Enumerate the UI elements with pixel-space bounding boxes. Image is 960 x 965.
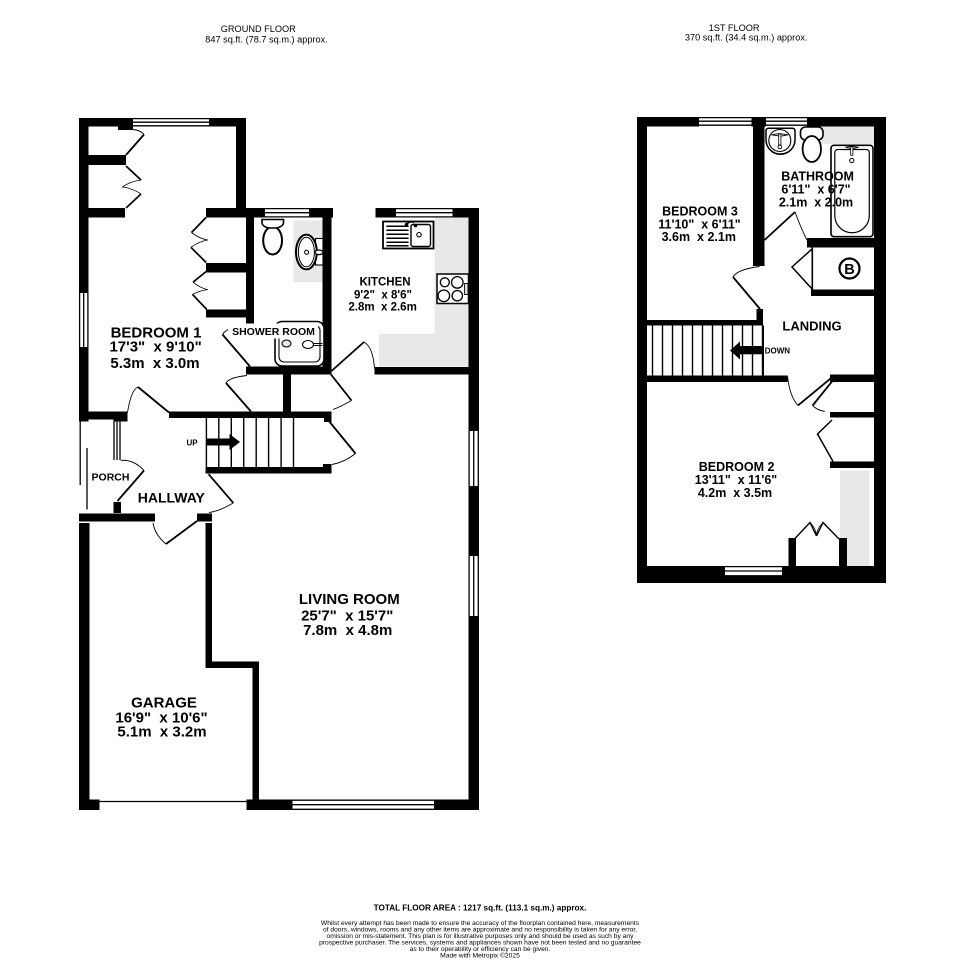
svg-text:KITCHEN: KITCHEN xyxy=(359,277,410,289)
svg-text:5.1m x 3.2m: 5.1m x 3.2m xyxy=(117,724,206,741)
svg-text:BEDROOM 2: BEDROOM 2 xyxy=(699,460,775,474)
svg-text:3.6m x 2.1m: 3.6m x 2.1m xyxy=(662,230,736,244)
svg-text:LANDING: LANDING xyxy=(782,319,841,334)
svg-text:BATHROOM: BATHROOM xyxy=(781,170,854,184)
svg-text:B: B xyxy=(844,262,854,278)
svg-text:BEDROOM 3: BEDROOM 3 xyxy=(662,205,738,219)
svg-text:1ST FLOOR: 1ST FLOOR xyxy=(709,23,760,33)
svg-text:SHOWER ROOM: SHOWER ROOM xyxy=(232,326,315,338)
svg-text:9'2" x 8'6": 9'2" x 8'6" xyxy=(354,289,412,301)
svg-text:LIVING ROOM: LIVING ROOM xyxy=(299,591,400,608)
svg-text:DOWN: DOWN xyxy=(765,347,791,356)
svg-text:6'11" x 6'7": 6'11" x 6'7" xyxy=(781,183,850,197)
svg-text:UP: UP xyxy=(186,439,198,448)
svg-text:TOTAL FLOOR AREA : 1217 sq.ft.: TOTAL FLOOR AREA : 1217 sq.ft. (113.1 sq… xyxy=(374,904,587,913)
svg-text:17'3" x 9'10": 17'3" x 9'10" xyxy=(109,339,201,356)
svg-text:2.8m x 2.6m: 2.8m x 2.6m xyxy=(348,302,416,314)
svg-text:370 sq.ft. (34.4 sq.m.) approx: 370 sq.ft. (34.4 sq.m.) approx. xyxy=(685,33,808,43)
svg-text:847 sq.ft. (78.7 sq.m.) approx: 847 sq.ft. (78.7 sq.m.) approx. xyxy=(205,35,328,45)
svg-text:HALLWAY: HALLWAY xyxy=(138,490,206,506)
svg-text:GROUND FLOOR: GROUND FLOOR xyxy=(221,24,296,34)
svg-text:2.1m x 2.0m: 2.1m x 2.0m xyxy=(779,196,853,210)
svg-text:4.2m x 3.5m: 4.2m x 3.5m xyxy=(698,486,772,500)
svg-text:7.8m x 4.8m: 7.8m x 4.8m xyxy=(303,622,392,639)
svg-text:13'11" x 11'6": 13'11" x 11'6" xyxy=(695,473,778,487)
svg-text:5.3m x 3.0m: 5.3m x 3.0m xyxy=(110,355,199,372)
svg-text:PORCH: PORCH xyxy=(92,472,130,484)
svg-text:Made with Metropix ©2025: Made with Metropix ©2025 xyxy=(440,952,520,960)
